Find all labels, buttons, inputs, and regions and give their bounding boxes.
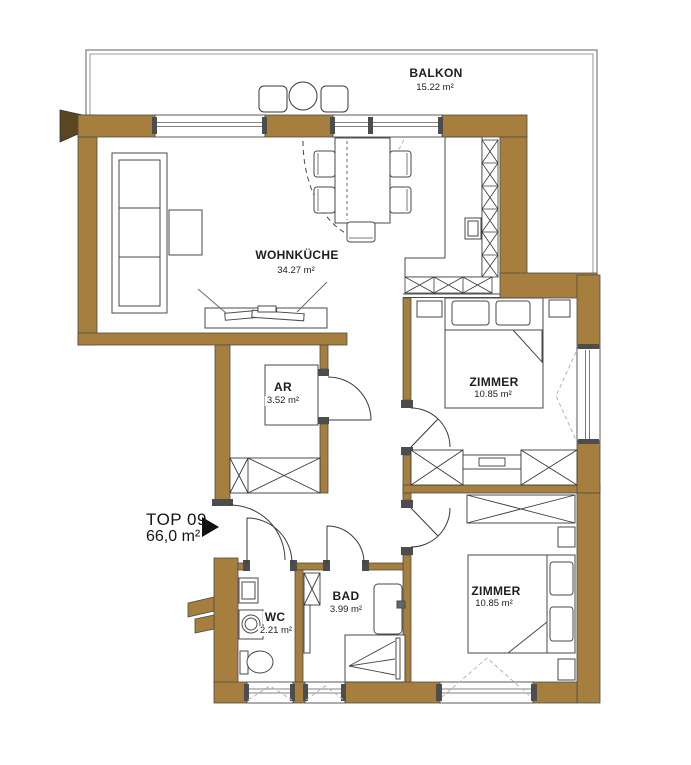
ar-door (328, 377, 371, 420)
unit-label: TOP 09 (146, 510, 207, 530)
bad-door (327, 526, 364, 563)
balcony-table (289, 82, 317, 110)
unit-area: 66,0 m² (146, 528, 200, 546)
floor-plan: BALKON 15.22 m² WOHNKÜCHE 34.27 m² AR 3.… (0, 0, 691, 765)
bedroom2-wardrobe (467, 495, 575, 523)
room-label-zimmer2: ZIMMER (469, 585, 522, 598)
entry-wardrobe (230, 458, 320, 493)
room-label-bad: BAD (331, 590, 362, 603)
exterior-steps (188, 597, 214, 633)
room-label-wohnkueche: WOHNKÜCHE (253, 249, 340, 262)
thin-partition (403, 294, 500, 298)
bedroom1-wardrobe (411, 450, 577, 485)
room-label-ar: AR (272, 381, 294, 394)
room-area-wc: 2.21 m² (258, 626, 294, 636)
dining-table (335, 138, 390, 223)
tv-sideboard (198, 282, 327, 328)
room-area-ar: 3.52 m² (265, 396, 301, 406)
room-area-zimmer2: 10.85 m² (473, 599, 515, 609)
kitchen-counter (405, 137, 482, 277)
entry-door-swing (230, 505, 285, 560)
unit-pointer-arrow (202, 517, 219, 537)
bedroom2-door (411, 508, 450, 547)
bedroom1-door (411, 408, 450, 447)
coffee-table (169, 210, 202, 255)
bad-cabinet (304, 573, 320, 653)
room-area-bad: 3.99 m² (328, 605, 364, 615)
bad-washbasin (374, 584, 405, 634)
room-area-wohnkueche: 34.27 m² (275, 266, 317, 276)
room-label-zimmer1: ZIMMER (467, 376, 520, 389)
toilet (240, 651, 273, 674)
wc-sink (239, 578, 258, 603)
sofa (112, 153, 167, 313)
room-area-balkon: 15.22 m² (414, 83, 456, 93)
room-area-zimmer1: 10.85 m² (472, 390, 514, 400)
room-label-wc: WC (263, 611, 288, 624)
room-label-balkon: BALKON (407, 67, 464, 80)
floor-plan-canvas (0, 0, 691, 765)
shower (345, 635, 405, 682)
